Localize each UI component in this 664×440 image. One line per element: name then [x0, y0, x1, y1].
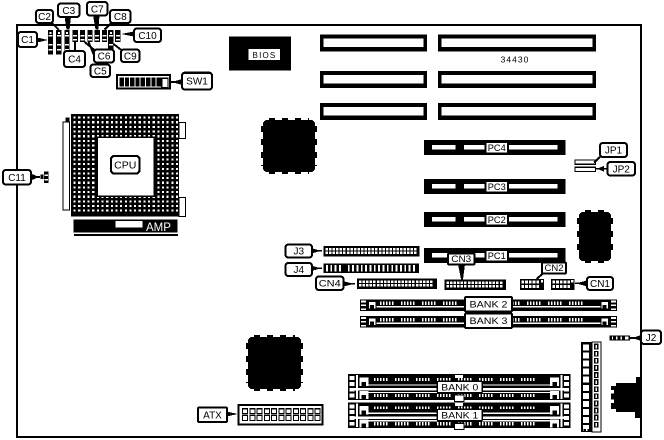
svg-text:SW1: SW1	[186, 77, 208, 88]
svg-text:JP1: JP1	[605, 146, 623, 157]
svg-text:PC4: PC4	[488, 143, 506, 154]
svg-text:CN4: CN4	[319, 279, 341, 290]
svg-text:PC2: PC2	[488, 215, 506, 226]
svg-text:C11: C11	[8, 173, 26, 184]
svg-text:C10: C10	[138, 31, 157, 42]
svg-text:BIOS: BIOS	[253, 51, 277, 60]
svg-text:CN1: CN1	[590, 279, 610, 290]
svg-text:ATX: ATX	[203, 410, 222, 421]
svg-text:J3: J3	[293, 247, 304, 258]
svg-text:PC3: PC3	[488, 182, 506, 193]
svg-text:34430: 34430	[501, 55, 530, 65]
svg-text:C1: C1	[21, 35, 34, 46]
svg-text:JP2: JP2	[613, 164, 631, 175]
svg-text:AMP: AMP	[146, 222, 171, 234]
svg-text:C5: C5	[94, 66, 107, 77]
svg-text:C9: C9	[124, 51, 137, 62]
svg-text:C4: C4	[68, 55, 81, 66]
svg-text:C6: C6	[98, 52, 111, 63]
svg-text:J4: J4	[293, 265, 304, 276]
svg-text:CN3: CN3	[451, 254, 471, 264]
svg-text:C8: C8	[114, 12, 127, 23]
svg-text:J2: J2	[646, 333, 657, 344]
svg-text:BANK 3: BANK 3	[470, 316, 508, 327]
svg-text:C7: C7	[91, 4, 104, 15]
svg-text:CPU: CPU	[114, 160, 136, 172]
svg-text:C2: C2	[38, 12, 51, 23]
svg-text:CN2: CN2	[545, 263, 564, 273]
svg-text:PC1: PC1	[488, 251, 506, 262]
svg-text:C3: C3	[62, 6, 75, 17]
svg-text:BANK 1: BANK 1	[441, 410, 478, 421]
svg-text:BANK 0: BANK 0	[441, 382, 478, 393]
svg-text:BANK 2: BANK 2	[470, 300, 508, 311]
